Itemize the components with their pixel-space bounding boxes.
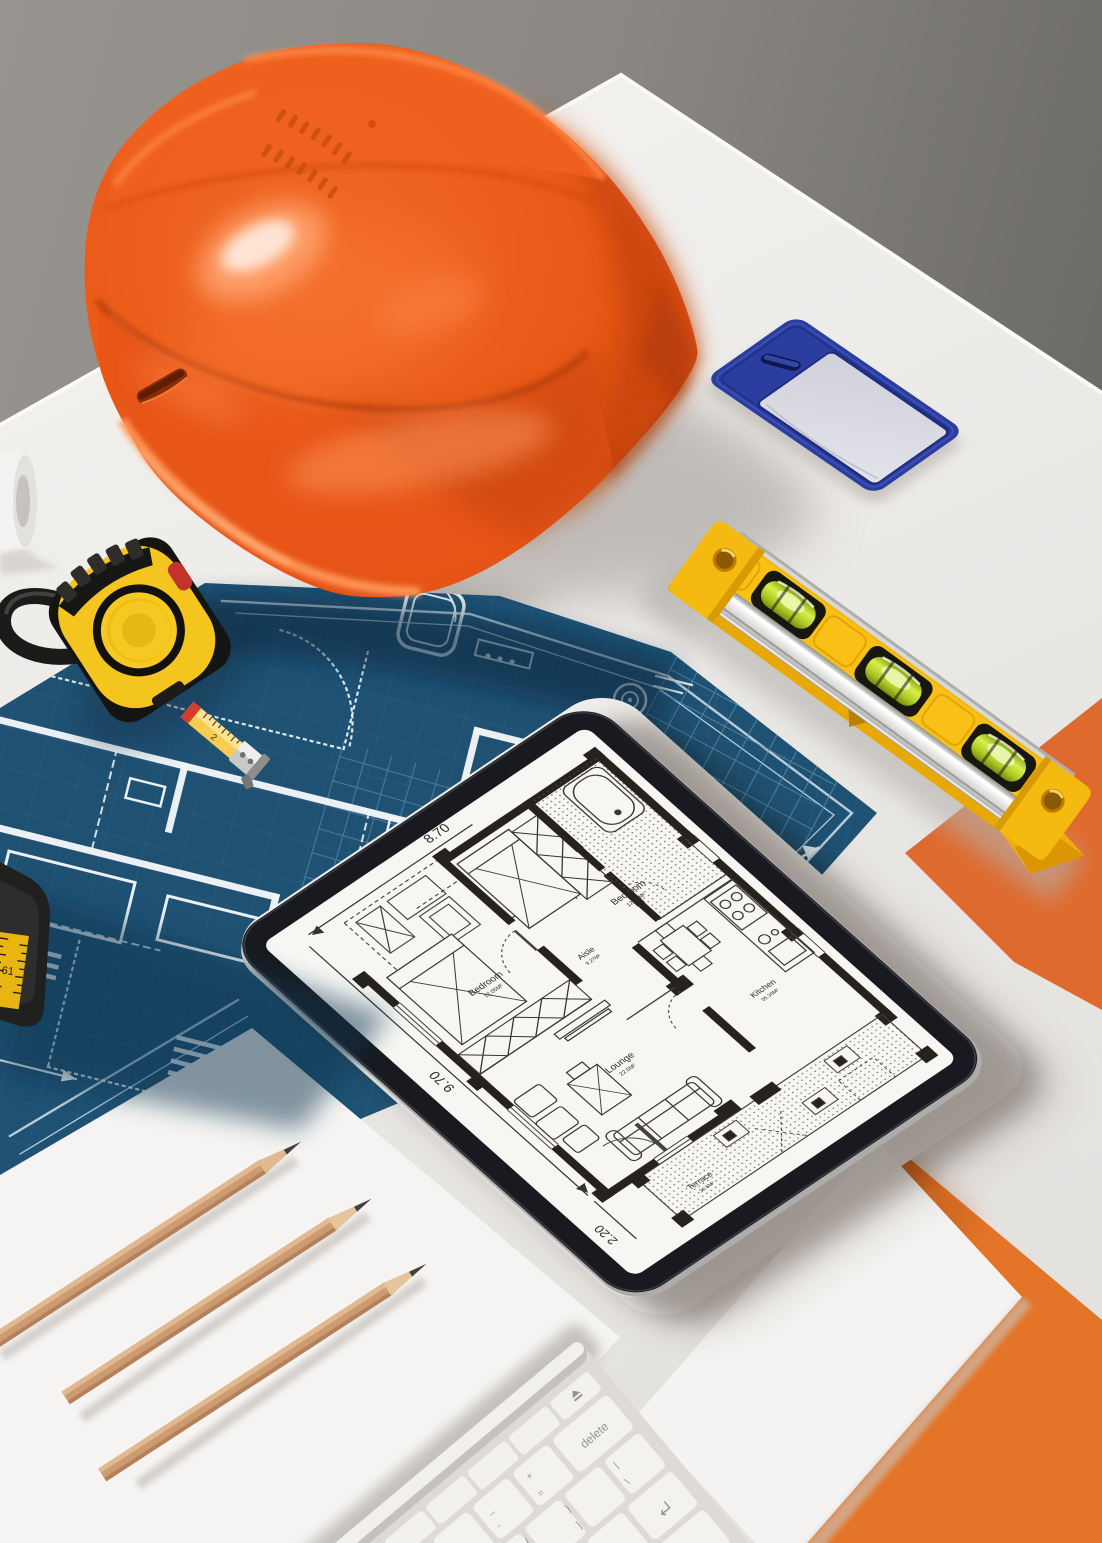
svg-text:61: 61 (1, 965, 15, 979)
